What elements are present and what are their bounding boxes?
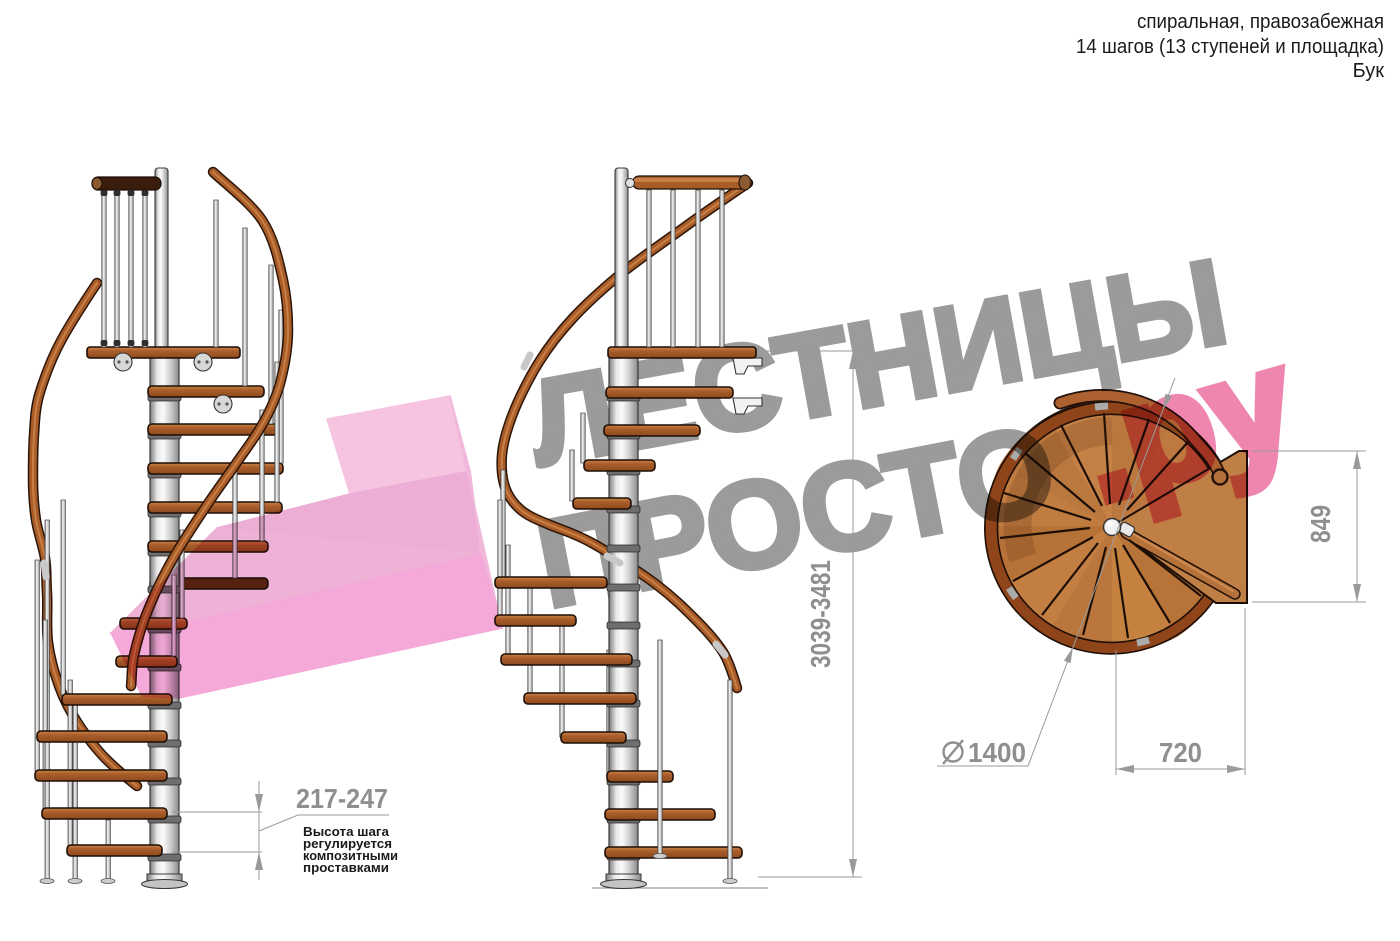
svg-text:1400: 1400 [968, 737, 1026, 768]
svg-text:Бук: Бук [1353, 60, 1385, 82]
svg-text:720: 720 [1159, 737, 1202, 768]
svg-text:3039-3481: 3039-3481 [805, 560, 836, 668]
svg-text:проставками: проставками [303, 860, 389, 875]
svg-text:спиральная, правозабежная: спиральная, правозабежная [1137, 11, 1384, 33]
svg-text:849: 849 [1305, 505, 1336, 543]
svg-text:14 шагов (13 ступеней и площад: 14 шагов (13 ступеней и площадка) [1076, 36, 1384, 58]
svg-text:217-247: 217-247 [296, 783, 388, 814]
